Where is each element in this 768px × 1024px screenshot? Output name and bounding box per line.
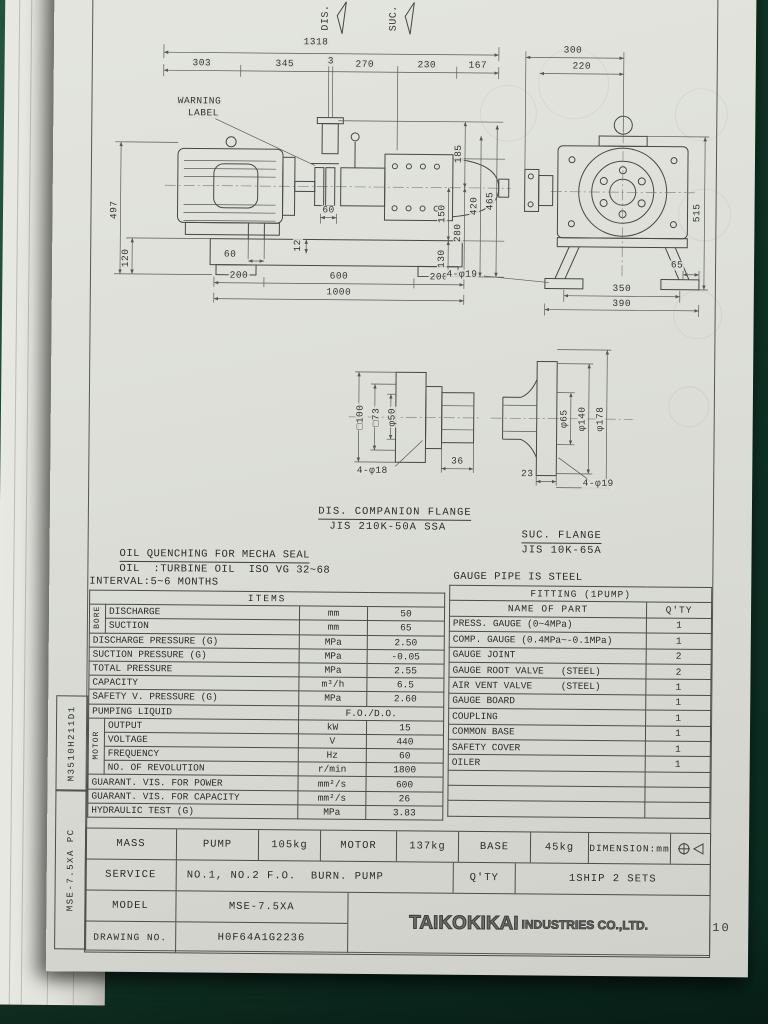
item-unit: r/min [298, 762, 366, 777]
fitting-qty: 1 [645, 725, 710, 741]
dim-seg4: 270 [354, 60, 375, 71]
dim-seg5: 230 [416, 60, 437, 71]
qty-value: 1SHIP 2 SETS [515, 863, 710, 895]
service-label: SERVICE [86, 860, 176, 891]
suc-flow-label: SUC. [389, 4, 400, 32]
dim-shim-12: 12 [293, 238, 304, 252]
fitting-name: PRESS. GAUGE (0~4MPa) [449, 616, 646, 633]
dim-disfl-pcd: □73 [371, 407, 382, 428]
dim-end-390: 390 [611, 299, 632, 310]
page-edge-line [21, 0, 33, 1005]
maker-logo-rest: INDUSTRIES CO.,LTD. [522, 917, 649, 932]
warning-label-line2: LABEL [187, 108, 220, 119]
dim-seg1: 303 [191, 58, 212, 69]
item-value: 3.83 [366, 805, 443, 820]
fitting-qty: 1 [646, 679, 711, 695]
suc-flange-caption: SUC. FLANGE [521, 529, 601, 544]
item-unit: m³/h [299, 677, 367, 692]
base-label: BASE [458, 832, 530, 863]
item-value: 6.5 [367, 678, 444, 693]
bore-group-label: BORE [89, 604, 105, 633]
title-block: MASS PUMP 105kg MOTOR 137kg BASE 45kg DI… [84, 828, 711, 958]
item-value: 2.55 [367, 663, 444, 678]
page-edge-line [9, 0, 21, 1005]
dim-sucfl-outer: φ178 [595, 406, 606, 433]
dim-seg3: 3 [327, 56, 335, 67]
fitting-table: FITTING (1PUMP) NAME OF PART Q'TY PRESS.… [447, 585, 712, 819]
fitting-empty-row [448, 770, 645, 787]
dim-end-515: 515 [692, 203, 703, 224]
service-row: SERVICE NO.1, NO.2 F.O. BURN. PUMP Q'TY … [86, 859, 710, 895]
dim-end-65: 65 [670, 260, 684, 271]
item-value: F.O./D.O. [299, 705, 444, 720]
drawing-no-label: DRAWING NO. [85, 922, 175, 953]
item-value: 50 [367, 607, 444, 622]
warning-label-line1: WARNING [177, 96, 223, 107]
item-value: 440 [366, 734, 443, 749]
model-value: MSE-7.5XA [175, 891, 347, 922]
item-name: HYDRAULIC TEST (G) [88, 803, 298, 819]
items-table: ITEMS BORE DISCHARGE mm 50 SUCTION mm 65… [87, 590, 445, 821]
dis-flange-caption: DIS. COMPANION FLANGE [318, 506, 471, 521]
item-unit: MPa [299, 634, 367, 649]
fitting-qty: 2 [646, 649, 711, 665]
item-value: 65 [367, 621, 444, 636]
mass-row: MASS PUMP 105kg MOTOR 137kg BASE 45kg DI… [86, 829, 710, 864]
page-number: 10 [712, 921, 731, 935]
item-value: 600 [366, 777, 443, 792]
fitting-name: COMP. GAUGE (0.4MPa~-0.1MPa) [449, 631, 646, 648]
dim-h-185: 185 [454, 143, 465, 164]
pump-mass-value: 105kg [258, 830, 320, 861]
fitting-name: GAUGE BOARD [449, 693, 646, 710]
item-unit: Hz [298, 748, 366, 763]
oil-quenching-note: OIL QUENCHING FOR MECHA SEAL [119, 548, 310, 564]
dim-base-total-1000: 1000 [325, 287, 352, 298]
item-value: 1800 [366, 763, 443, 778]
item-value: 2.50 [367, 635, 444, 650]
service-value: NO.1, NO.2 F.O. BURN. PUMP [176, 860, 453, 892]
pump-label: PUMP [176, 829, 258, 860]
motor-label: MOTOR [320, 831, 396, 862]
dim-base-left-200: 200 [229, 271, 250, 282]
model-label: MODEL [85, 891, 175, 922]
item-unit: MPa [299, 691, 367, 706]
item-unit: kW [298, 720, 366, 735]
item-unit: V [298, 734, 366, 749]
fitting-qty: 1 [646, 618, 711, 634]
motor-group-label: MOTOR [88, 718, 104, 775]
item-value: -0.05 [367, 649, 444, 664]
item-unit: mm²/s [298, 776, 366, 791]
projection-symbol-icon [670, 834, 710, 864]
dim-h-280: 280 [453, 222, 464, 243]
base-mass-value: 45kg [530, 832, 588, 863]
dim-bolt-pitch-60: 60 [223, 250, 237, 261]
item-unit: MPa [299, 663, 367, 678]
fitting-qty: 1 [646, 633, 711, 649]
dis-flange-spec: JIS 210K-50A SSA [329, 521, 446, 534]
model-row: MODEL MSE-7.5XA [85, 891, 347, 923]
qty-label: Q'TY [453, 863, 515, 894]
fitting-qty: 1 [646, 710, 711, 726]
mass-label: MASS [86, 829, 176, 860]
fitting-qty: 1 [645, 741, 710, 757]
fitting-col-qty: Q'TY [646, 602, 711, 618]
item-value: 60 [366, 749, 443, 764]
item-unit: mm [299, 606, 367, 621]
maker-logo: TAIKOKIKAI INDUSTRIES CO.,LTD. [347, 893, 710, 956]
dim-h-465: 465 [485, 191, 496, 212]
dim-height-497: 497 [109, 199, 120, 220]
item-value: 15 [366, 720, 443, 735]
dim-sucfl-thickness: 23 [520, 469, 534, 480]
technical-drawing-linework [49, 0, 756, 575]
fitting-name: AIR VENT VALVE (STEEL) [449, 678, 646, 695]
item-unit: mm²/s [298, 791, 366, 806]
assembly-view [164, 116, 511, 277]
dim-h-150: 150 [437, 203, 448, 224]
dim-seg6: 167 [467, 61, 488, 72]
model-drawing-rows: MODEL MSE-7.5XA DRAWING NO. H0F64A1G2236… [85, 890, 710, 957]
dim-end-350: 350 [612, 284, 633, 295]
fitting-qty: 1 [646, 695, 711, 711]
drawing-sheet: DIS. SUC. 1318 303 345 3 270 230 167 WAR… [46, 0, 757, 977]
drawing-no-row: DRAWING NO. H0F64A1G2236 [85, 921, 347, 954]
dim-end-holes: 4-φ19 [445, 269, 478, 280]
fitting-col-name: NAME OF PART [450, 601, 647, 618]
dim-disfl-bore: φ50 [387, 407, 398, 428]
maker-logo-bold: TAIKOKIKAI [409, 912, 519, 935]
dim-h-130: 130 [437, 248, 448, 269]
fitting-empty-row [448, 785, 645, 802]
item-value: 26 [366, 791, 443, 806]
fitting-empty-row [448, 801, 645, 818]
dim-base-height-120: 120 [121, 248, 132, 269]
suc-flange-spec: JIS 10K-65A [521, 544, 601, 557]
fitting-name: GAUGE ROOT VALVE (STEEL) [449, 662, 646, 679]
item-unit: MPa [298, 805, 366, 820]
dim-h-420: 420 [469, 196, 480, 217]
drawing-no-value: H0F64A1G2236 [175, 922, 347, 953]
dim-end-300: 300 [563, 45, 584, 56]
dim-sucfl-holes: 4-φ19 [582, 479, 615, 490]
flow-direction-arrows [337, 2, 414, 35]
dim-total-length: 1318 [303, 37, 330, 48]
dim-sucfl-bore: φ65 [559, 408, 570, 429]
dimension-note: DIMENSION:mm [588, 833, 670, 864]
fitting-name: COUPLING [449, 708, 646, 725]
end-view-dimensions [484, 51, 710, 317]
fitting-name: OILER [448, 755, 645, 772]
margin-code-upper: M3510H211D1 [55, 695, 88, 791]
fitting-name: SAFETY COVER [448, 739, 645, 756]
fitting-name: GAUGE JOINT [449, 647, 646, 664]
fitting-name: COMMON BASE [448, 724, 645, 741]
dim-disfl-outer: □100 [355, 403, 366, 430]
dim-base-mid-600: 600 [329, 271, 350, 282]
margin-code-lower: MSE-7.5XA PC [54, 789, 87, 949]
item-value: 2.60 [367, 692, 444, 707]
interval-note: INTERVAL:5~6 MONTHS [89, 576, 218, 589]
dim-seg2: 345 [274, 59, 295, 70]
dim-disfl-thickness: 36 [450, 457, 464, 468]
gauge-pipe-note: GAUGE PIPE IS STEEL [453, 571, 582, 584]
item-unit: mm [299, 620, 367, 635]
fitting-qty: 1 [645, 756, 710, 772]
dis-flow-label: DIS. [321, 4, 332, 32]
dim-disfl-holes: 4-φ18 [356, 466, 389, 477]
dim-foot-bolt-60: 60 [321, 205, 335, 216]
fitting-qty: 2 [646, 664, 711, 680]
oil-type-note: OIL :TURBINE OIL ISO VG 32~68 [119, 563, 330, 577]
motor-mass-value: 137kg [396, 831, 458, 862]
dim-end-220: 220 [571, 62, 592, 73]
dim-sucfl-pcd: φ140 [577, 405, 588, 432]
item-unit: MPa [299, 649, 367, 664]
